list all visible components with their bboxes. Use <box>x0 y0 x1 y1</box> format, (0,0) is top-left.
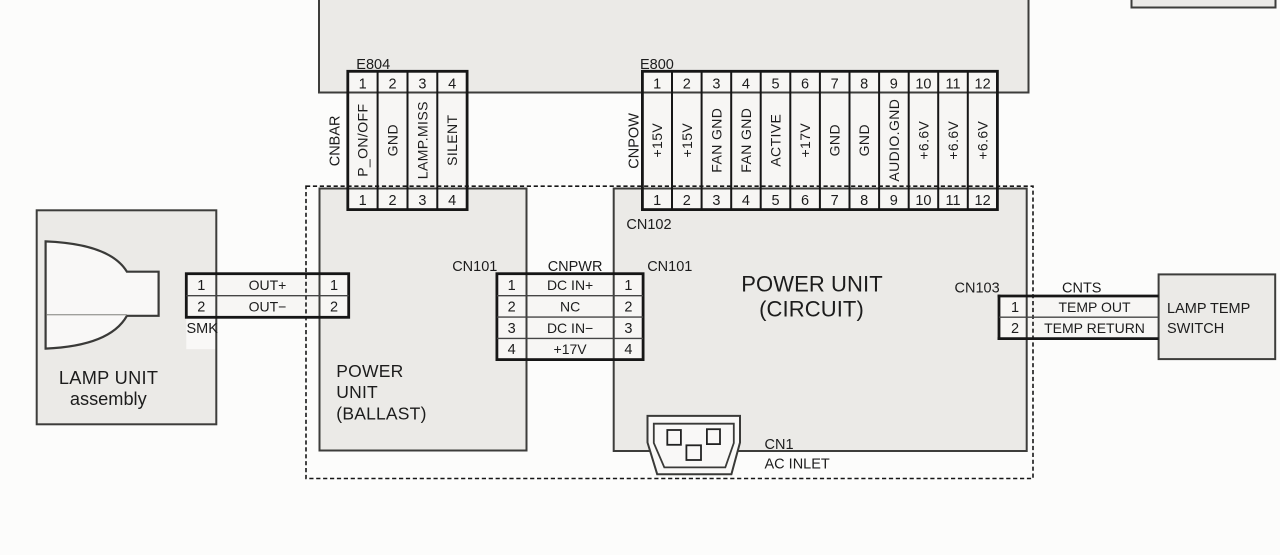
svg-text:7: 7 <box>831 193 839 209</box>
svg-text:11: 11 <box>945 76 960 92</box>
svg-text:CNTS: CNTS <box>1062 281 1101 297</box>
svg-text:4: 4 <box>508 342 516 358</box>
svg-text:3: 3 <box>418 193 426 209</box>
svg-text:CN1: CN1 <box>765 437 794 453</box>
svg-text:4: 4 <box>742 76 750 92</box>
svg-text:POWER UNIT: POWER UNIT <box>741 271 883 296</box>
svg-text:E804: E804 <box>356 57 390 73</box>
svg-text:6: 6 <box>801 193 809 209</box>
svg-text:UNIT: UNIT <box>336 382 378 402</box>
svg-text:DC IN−: DC IN− <box>547 320 593 336</box>
svg-text:1: 1 <box>359 76 367 92</box>
svg-text:NC: NC <box>560 298 580 314</box>
svg-text:(BALLAST): (BALLAST) <box>336 403 426 423</box>
svg-text:OUT+: OUT+ <box>249 277 287 293</box>
svg-text:8: 8 <box>860 193 868 209</box>
svg-text:8: 8 <box>860 76 868 92</box>
svg-text:4: 4 <box>448 76 456 92</box>
svg-text:E800: E800 <box>640 57 674 73</box>
svg-text:GND: GND <box>856 124 872 156</box>
svg-text:LAMP.MISS: LAMP.MISS <box>414 101 430 179</box>
svg-text:LAMP TEMP: LAMP TEMP <box>1167 301 1250 317</box>
svg-text:2: 2 <box>1011 321 1019 337</box>
svg-text:3: 3 <box>712 76 720 92</box>
svg-text:4: 4 <box>742 193 750 209</box>
svg-text:12: 12 <box>975 193 991 209</box>
svg-text:GND: GND <box>385 124 401 156</box>
svg-text:5: 5 <box>771 193 779 209</box>
svg-text:1: 1 <box>1011 300 1019 316</box>
svg-text:3: 3 <box>418 76 426 92</box>
svg-text:2: 2 <box>330 299 338 315</box>
svg-text:CNPOW: CNPOW <box>627 113 643 169</box>
svg-text:CN103: CN103 <box>955 281 1000 297</box>
svg-text:LAMP UNIT: LAMP UNIT <box>59 368 158 388</box>
svg-text:+6.6V: +6.6V <box>915 120 931 159</box>
svg-text:+15V: +15V <box>679 123 695 158</box>
svg-text:TEMP RETURN: TEMP RETURN <box>1044 320 1145 336</box>
svg-text:2: 2 <box>624 299 632 315</box>
svg-text:SWITCH: SWITCH <box>1167 321 1224 337</box>
svg-text:SMK: SMK <box>187 321 219 337</box>
svg-text:CNPWR: CNPWR <box>548 259 603 275</box>
svg-text:9: 9 <box>890 76 898 92</box>
svg-text:2: 2 <box>508 299 516 315</box>
svg-text:2: 2 <box>197 299 205 315</box>
svg-text:1: 1 <box>197 278 205 294</box>
svg-text:GND: GND <box>827 124 843 156</box>
svg-text:+17V: +17V <box>797 123 813 158</box>
svg-text:assembly: assembly <box>70 389 148 409</box>
svg-text:1: 1 <box>359 193 367 209</box>
svg-text:12: 12 <box>975 76 991 92</box>
svg-text:OUT−: OUT− <box>249 298 287 314</box>
svg-text:1: 1 <box>330 278 338 294</box>
svg-text:CN101: CN101 <box>647 259 692 275</box>
svg-text:SILENT: SILENT <box>444 114 460 165</box>
svg-text:P_ON/OFF: P_ON/OFF <box>355 104 371 177</box>
svg-text:4: 4 <box>448 193 456 209</box>
svg-text:10: 10 <box>915 76 931 92</box>
svg-text:1: 1 <box>653 193 661 209</box>
svg-text:11: 11 <box>945 193 960 209</box>
svg-text:TEMP OUT: TEMP OUT <box>1058 299 1131 315</box>
svg-text:1: 1 <box>624 278 632 294</box>
svg-text:POWER: POWER <box>336 361 403 381</box>
svg-text:CN101: CN101 <box>452 259 497 275</box>
svg-text:CNBAR: CNBAR <box>328 116 344 167</box>
svg-text:1: 1 <box>653 76 661 92</box>
svg-text:AUDIO.GND: AUDIO.GND <box>886 99 902 182</box>
svg-text:DC IN+: DC IN+ <box>547 277 593 293</box>
svg-text:4: 4 <box>624 342 632 358</box>
svg-text:FAN GND: FAN GND <box>708 108 724 173</box>
svg-text:3: 3 <box>508 321 516 337</box>
svg-text:2: 2 <box>683 193 691 209</box>
svg-text:7: 7 <box>831 76 839 92</box>
svg-text:AC INLET: AC INLET <box>765 457 830 473</box>
svg-text:+15V: +15V <box>649 123 665 158</box>
svg-text:2: 2 <box>388 76 396 92</box>
svg-text:10: 10 <box>915 193 931 209</box>
svg-text:ACTIVE: ACTIVE <box>768 114 784 167</box>
svg-text:2: 2 <box>388 193 396 209</box>
svg-text:+6.6V: +6.6V <box>975 120 991 159</box>
svg-text:9: 9 <box>890 193 898 209</box>
svg-text:5: 5 <box>771 76 779 92</box>
svg-text:CN102: CN102 <box>626 217 671 233</box>
svg-text:6: 6 <box>801 76 809 92</box>
svg-text:FAN GND: FAN GND <box>738 108 754 173</box>
svg-text:+6.6V: +6.6V <box>945 120 961 159</box>
svg-text:3: 3 <box>712 193 720 209</box>
svg-text:+17V: +17V <box>554 341 588 357</box>
svg-text:2: 2 <box>683 76 691 92</box>
svg-text:(CIRCUIT): (CIRCUIT) <box>759 297 864 322</box>
svg-text:1: 1 <box>508 278 516 294</box>
svg-text:3: 3 <box>624 321 632 337</box>
